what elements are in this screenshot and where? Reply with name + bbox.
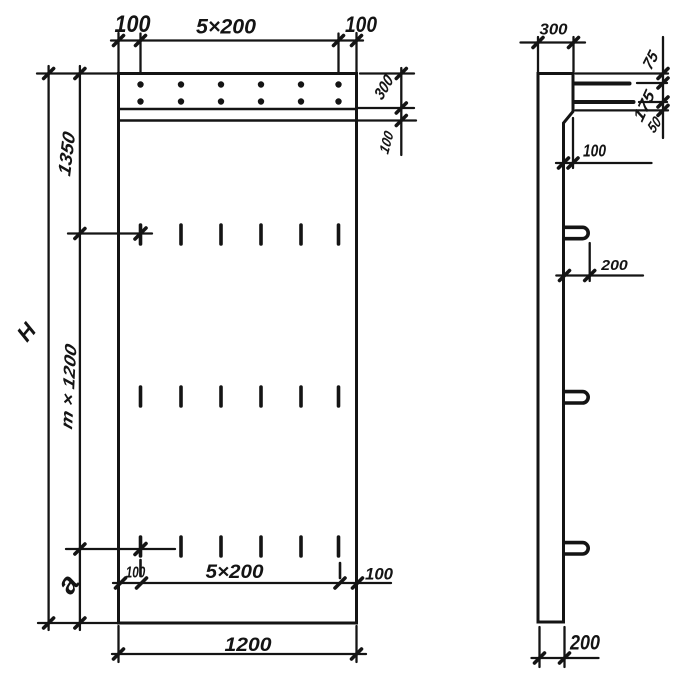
svg-text:1200: 1200 [225, 634, 272, 656]
svg-text:5×200: 5×200 [206, 562, 264, 583]
svg-text:200: 200 [569, 632, 600, 655]
svg-text:75: 75 [640, 46, 663, 73]
svg-text:300: 300 [371, 71, 397, 103]
svg-text:200: 200 [600, 257, 628, 274]
svg-text:H: H [12, 317, 42, 346]
svg-text:100: 100 [126, 565, 146, 582]
svg-text:100: 100 [376, 128, 396, 156]
svg-text:100: 100 [115, 11, 152, 38]
svg-text:300: 300 [540, 22, 568, 39]
svg-text:100: 100 [345, 12, 378, 37]
svg-text:100: 100 [365, 566, 394, 584]
svg-text:1350: 1350 [55, 129, 79, 178]
svg-text:m × 1200: m × 1200 [57, 341, 80, 431]
svg-text:100: 100 [583, 141, 606, 161]
svg-text:5×200: 5×200 [196, 16, 256, 39]
